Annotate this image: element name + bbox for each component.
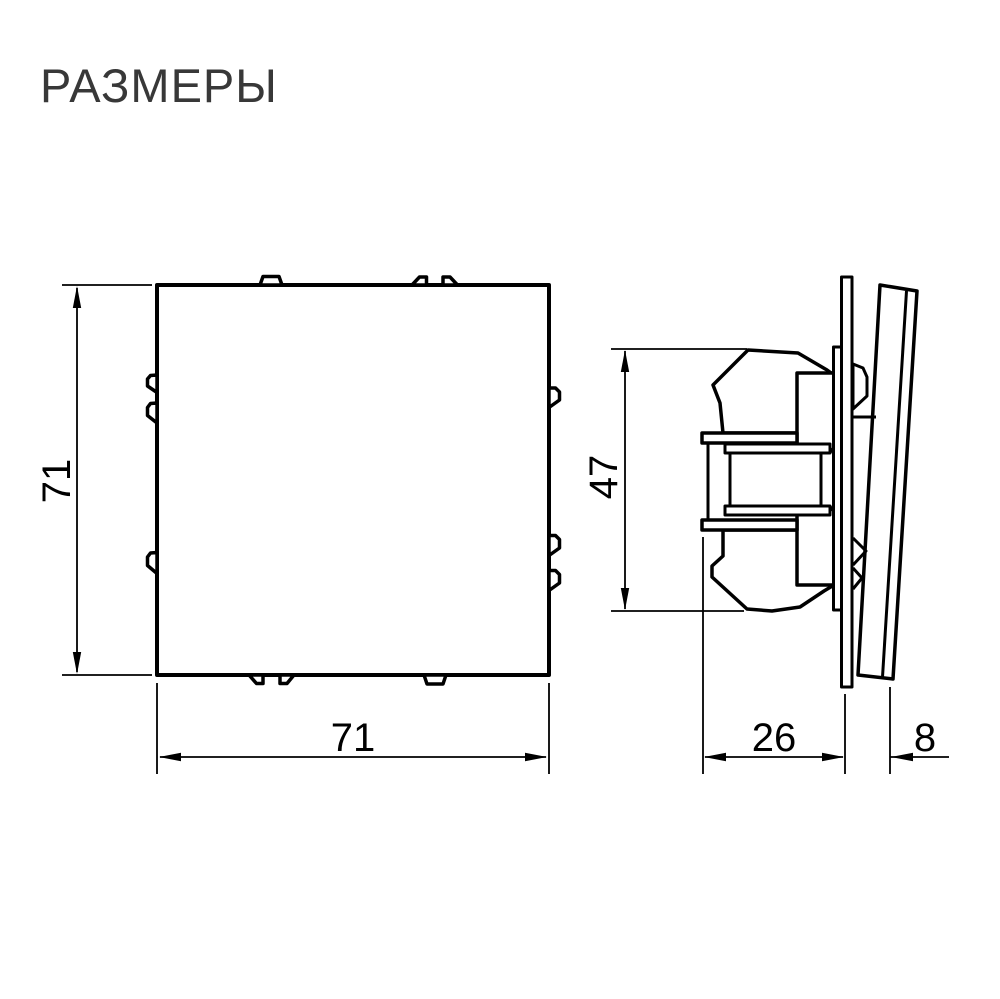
front-tab-bottom-trapezoid (424, 675, 446, 684)
front-width-value: 71 (331, 716, 376, 760)
side-height-value: 47 (582, 455, 626, 500)
front-tab-top-trapezoid (260, 277, 282, 286)
side-depth-value: 26 (752, 716, 797, 760)
front-tab-left-single (148, 553, 158, 574)
side-flange-bottom (702, 520, 797, 530)
arrow-up-icon (621, 350, 629, 372)
arrow-left-icon (159, 753, 181, 761)
dimension-front-height: 71 (35, 285, 152, 675)
dimension-side-protrusion: 8 (890, 687, 949, 774)
side-frame-plate (842, 277, 853, 687)
front-tab-right-pair-bottom (549, 571, 560, 591)
front-tab-bottom-pair-left (249, 675, 263, 684)
front-height-value: 71 (35, 459, 79, 504)
side-flange-top (702, 433, 797, 443)
side-pivot-bump-lower-2 (853, 568, 862, 589)
front-tab-right-single (549, 388, 560, 408)
front-tab-top-pair-left (412, 277, 427, 285)
side-pivot-bump-upper (853, 364, 867, 409)
arrow-left-icon (704, 753, 726, 761)
dimension-front-width: 71 (157, 683, 549, 774)
side-insert-cavity (730, 453, 821, 506)
arrow-down-icon (73, 652, 81, 674)
front-view (148, 277, 560, 685)
front-tab-left-pair-top (148, 375, 158, 393)
side-view (702, 277, 917, 687)
front-tab-bottom-pair-right (280, 675, 294, 684)
arrow-right-icon (822, 753, 844, 761)
arrow-left-icon (891, 753, 913, 761)
dimensions-page: РАЗМЕРЫ (0, 0, 1000, 999)
front-plate-outline (157, 285, 549, 675)
technical-drawing: 71 71 (0, 0, 1000, 999)
arrow-down-icon (621, 588, 629, 610)
arrow-up-icon (73, 286, 81, 308)
arrow-right-icon (525, 753, 547, 761)
side-protrusion-value: 8 (914, 716, 936, 760)
front-tab-top-pair-right (443, 277, 458, 285)
front-tab-left-pair-bottom (148, 403, 158, 423)
front-tab-right-pair-top (549, 536, 560, 556)
